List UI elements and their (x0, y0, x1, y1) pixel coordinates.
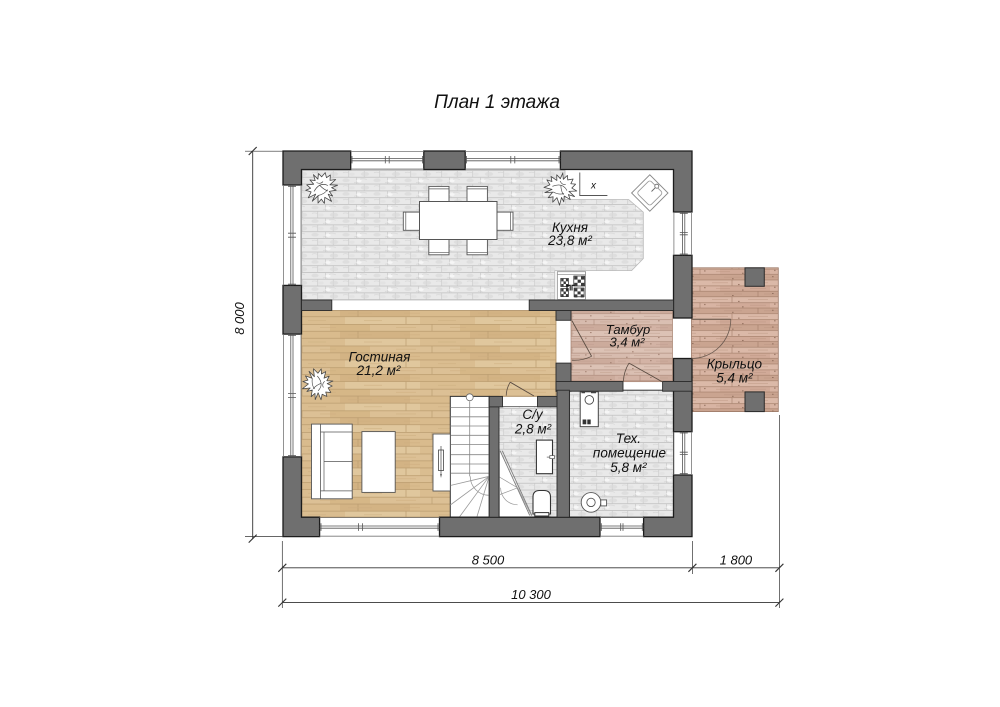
svg-text:2,8 м²: 2,8 м² (514, 422, 552, 437)
svg-text:8 000: 8 000 (232, 301, 247, 334)
svg-text:помещение: помещение (593, 446, 666, 461)
svg-text:С/у: С/у (522, 407, 544, 422)
svg-text:Тех.: Тех. (616, 431, 641, 446)
svg-text:План 1 этажа: План 1 этажа (434, 92, 560, 113)
svg-text:21,2 м²: 21,2 м² (356, 363, 401, 378)
svg-text:10 300: 10 300 (511, 587, 552, 602)
svg-text:3,4 м²: 3,4 м² (610, 335, 646, 350)
svg-text:x: x (590, 181, 597, 192)
svg-text:5,4 м²: 5,4 м² (716, 371, 753, 386)
svg-text:23,8 м²: 23,8 м² (547, 233, 592, 248)
svg-text:5,8 м²: 5,8 м² (610, 460, 647, 475)
svg-text:1 800: 1 800 (720, 552, 753, 567)
svg-text:Крыльцо: Крыльцо (707, 357, 763, 372)
svg-text:8 500: 8 500 (472, 552, 505, 567)
